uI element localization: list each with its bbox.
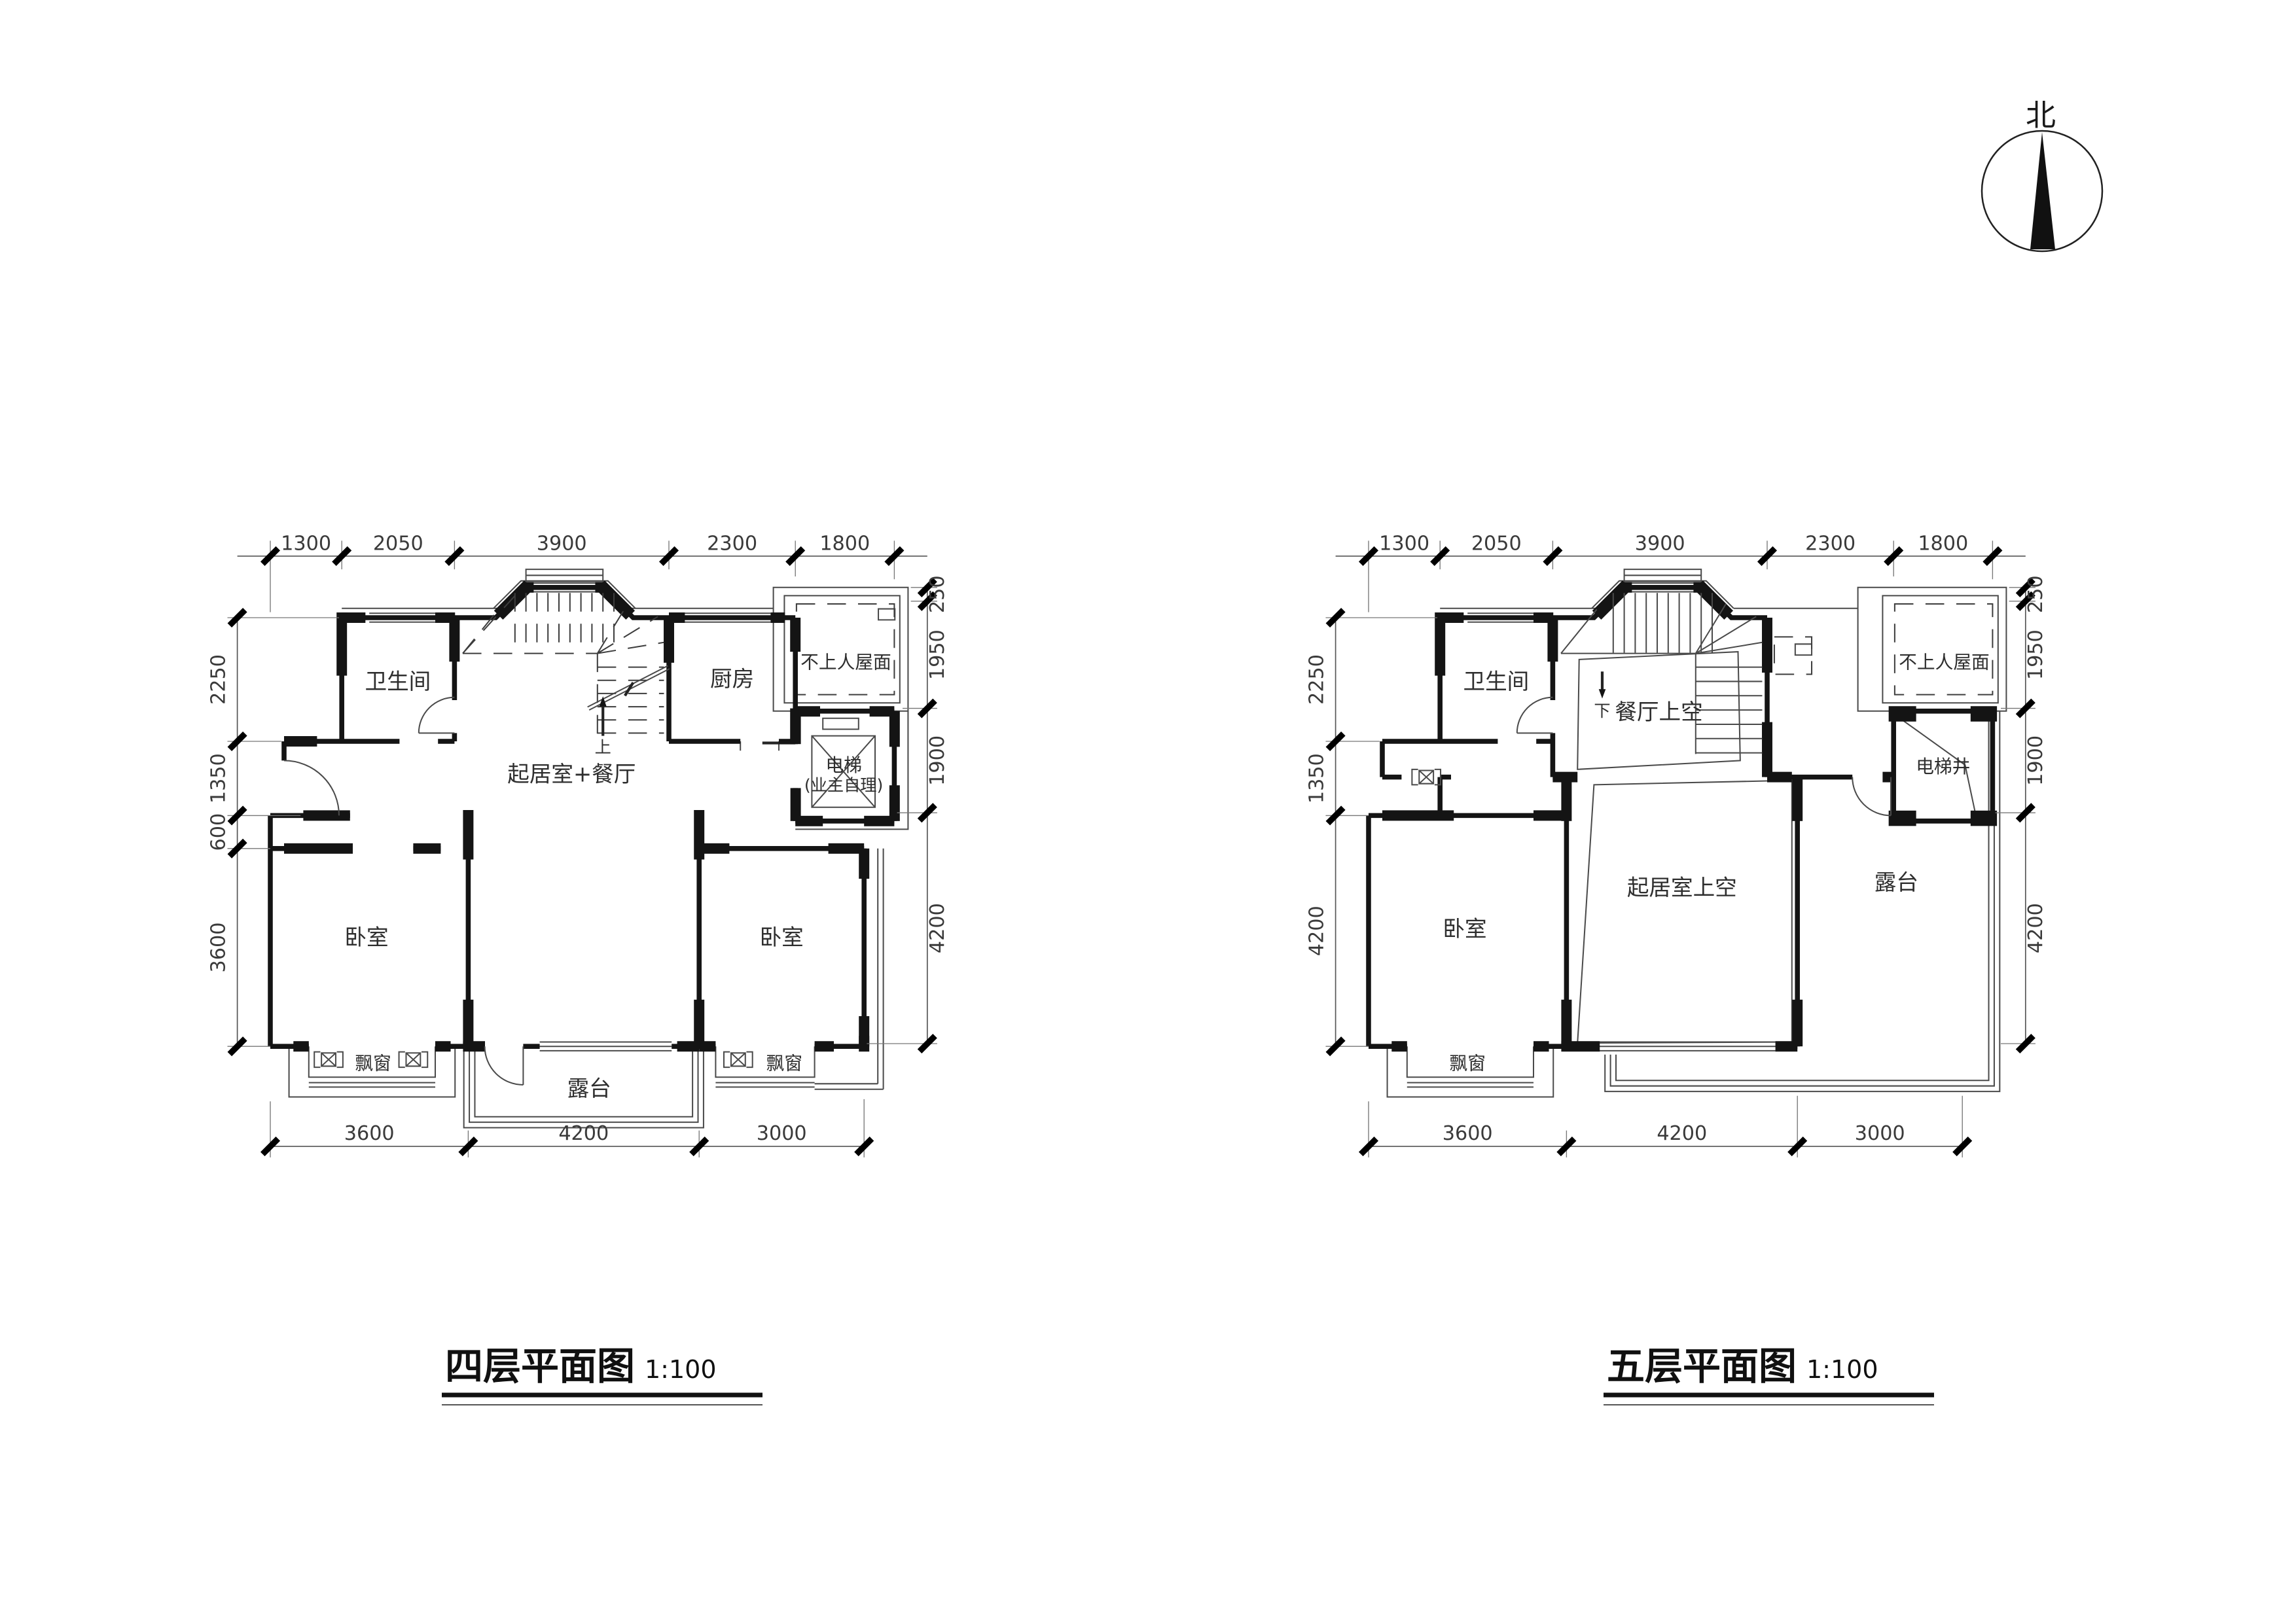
plan5-living-void-outline: [1577, 781, 1792, 1044]
dim-bottom-3: 3000: [757, 1122, 807, 1145]
room-label-roof: 不上人屋面: [1899, 651, 1990, 673]
dim-bottom-2: 4200: [1657, 1122, 1707, 1145]
plan5-dimensions: 1300 2050 3900 2300 1800 2250 1350 4200 …: [1305, 533, 2047, 1157]
dim-top-5: 1800: [1918, 533, 1968, 556]
drawing-sheet: { "sheet": {"background": "#ffffff", "li…: [0, 0, 2296, 1624]
bay-window-label-right: 飘窗: [766, 1052, 802, 1074]
room-label-elevator-note: (业主自理): [804, 776, 883, 795]
room-label-dining-void: 餐厅上空: [1615, 699, 1702, 724]
dim-right-4: 4200: [926, 903, 949, 953]
dim-top-5: 1800: [819, 533, 870, 556]
dim-bottom-1: 3600: [1443, 1122, 1493, 1145]
north-indicator: 北: [1982, 97, 2102, 251]
dim-top-2: 2050: [373, 533, 423, 556]
dim-left-4: 3600: [207, 923, 230, 973]
plan-fourth-floor: 卫生间 厨房 不上人屋面 电梯 (业主自理) 起居室+餐厅 卧室 卧室 飘窗 飘…: [207, 533, 949, 1157]
room-label-elevator: 电梯: [825, 754, 861, 776]
dim-left-1: 2250: [1305, 654, 1328, 705]
dim-top-2: 2050: [1471, 533, 1522, 556]
dim-right-1: 250: [926, 575, 949, 613]
dim-top-3: 3900: [1635, 533, 1685, 556]
floor-plan-canvas: 卫生间 厨房 不上人屋面 电梯 (业主自理) 起居室+餐厅 卧室 卧室 飘窗 飘…: [0, 0, 2296, 1624]
plan4-roof-dashed-outline: [797, 604, 895, 695]
plan5-roof-dashed-outline: [1895, 604, 1993, 695]
plan5-title-block: 五层平面图 1:100: [1604, 1344, 1934, 1405]
room-label-roof: 不上人屋面: [800, 651, 891, 673]
room-label-bathroom: 卫生间: [1463, 669, 1529, 694]
dim-left-3: 600: [207, 813, 230, 851]
plan4-title-block: 四层平面图 1:100: [442, 1344, 762, 1405]
dim-left-2: 1350: [1305, 753, 1328, 803]
room-label-living-void: 起居室上空: [1627, 875, 1737, 900]
room-label-bedroom-left: 卧室: [344, 925, 388, 950]
dim-bottom-2: 4200: [558, 1122, 609, 1145]
bay-window-label: 飘窗: [1449, 1052, 1485, 1074]
dim-right-1: 250: [2024, 575, 2047, 613]
dim-right-2: 1950: [2024, 629, 2047, 680]
room-label-bedroom-right: 卧室: [760, 925, 804, 950]
room-label-terrace: 露台: [1874, 870, 1918, 895]
dim-left-1: 2250: [207, 654, 230, 705]
dim-left-3: 4200: [1305, 906, 1328, 956]
window-icon: [1412, 769, 1441, 785]
bay-window-icon: [724, 1052, 753, 1068]
room-label-kitchen: 厨房: [710, 666, 754, 692]
dim-right-4: 4200: [2024, 903, 2047, 953]
dim-top-3: 3900: [537, 533, 587, 556]
dim-bottom-3: 3000: [1855, 1122, 1905, 1145]
north-label: 北: [2026, 97, 2056, 133]
plan4-doors: [284, 697, 523, 1085]
dim-top-4: 2300: [707, 533, 757, 556]
plan5-title: 五层平面图: [1607, 1344, 1797, 1388]
plan5-scale: 1:100: [1806, 1355, 1878, 1384]
bay-window-label-left: 飘窗: [355, 1052, 391, 1074]
north-needle-icon: [2030, 132, 2055, 249]
dim-bottom-1: 3600: [344, 1122, 395, 1145]
dim-top-4: 2300: [1805, 533, 1856, 556]
dim-right-3: 1900: [2024, 735, 2047, 786]
room-label-bedroom: 卧室: [1443, 916, 1486, 942]
stair-direction-label: 上: [595, 738, 611, 757]
room-label-living-dining: 起居室+餐厅: [507, 761, 636, 786]
plan4-title: 四层平面图: [445, 1344, 635, 1388]
room-label-bathroom: 卫生间: [365, 669, 431, 694]
room-label-terrace: 露台: [567, 1076, 611, 1101]
stair-direction-label: 下: [1594, 701, 1610, 720]
dim-right-2: 1950: [926, 629, 949, 680]
plan5-doors: [1517, 697, 1891, 816]
plan4-room-labels: 卫生间 厨房 不上人屋面 电梯 (业主自理) 起居室+餐厅 卧室 卧室 飘窗 飘…: [344, 651, 891, 1101]
dim-top-1: 1300: [1379, 533, 1429, 556]
dim-top-1: 1300: [281, 533, 331, 556]
bay-window-icon: [314, 1052, 343, 1068]
plan4-scale: 1:100: [645, 1355, 717, 1384]
bay-window-icon: [399, 1052, 428, 1068]
dim-left-2: 1350: [207, 753, 230, 803]
plan-fifth-floor: 卫生间 餐厅上空 不上人屋面 电梯井 卧室 起居室上空 露台 飘窗 下 1300…: [1305, 533, 2047, 1157]
room-label-elevator-shaft: 电梯井: [1916, 756, 1970, 777]
dim-right-3: 1900: [926, 735, 949, 786]
plan5-trim: [1388, 569, 2007, 1097]
